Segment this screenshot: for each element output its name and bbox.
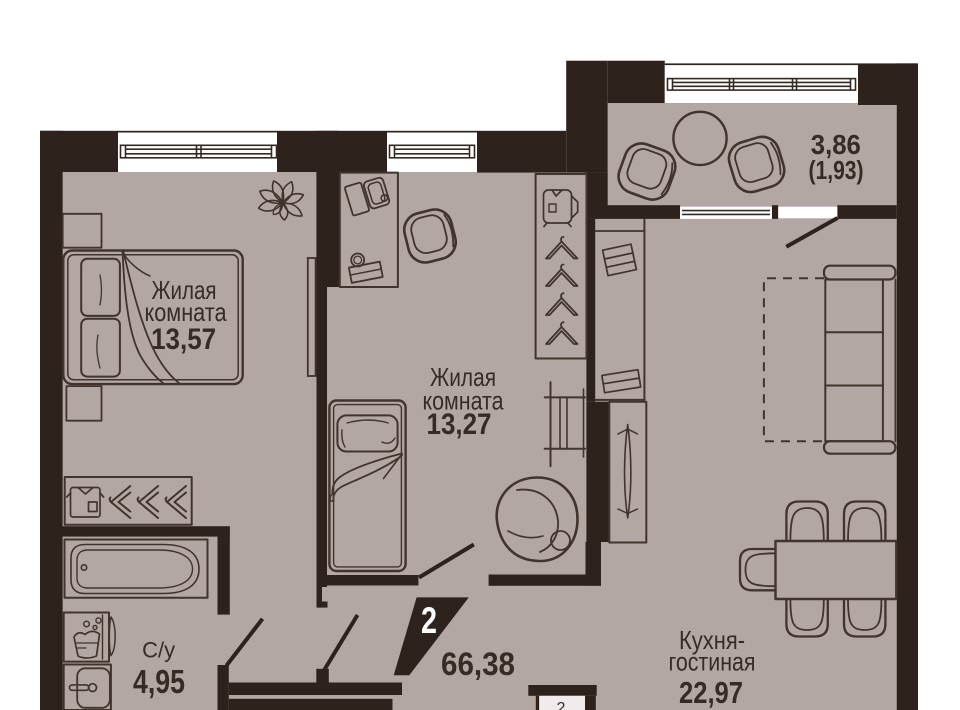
svg-text:13,57: 13,57 <box>151 323 216 356</box>
svg-text:С/у: С/у <box>142 638 175 663</box>
svg-text:2: 2 <box>557 700 566 710</box>
svg-text:22,97: 22,97 <box>679 675 743 710</box>
svg-text:66,38: 66,38 <box>441 646 515 682</box>
svg-text:13,27: 13,27 <box>427 408 492 441</box>
svg-text:2: 2 <box>421 600 437 641</box>
svg-text:4,95: 4,95 <box>133 663 185 700</box>
svg-text:(1,93): (1,93) <box>809 155 864 185</box>
svg-text:гостиная: гостиная <box>669 646 756 676</box>
